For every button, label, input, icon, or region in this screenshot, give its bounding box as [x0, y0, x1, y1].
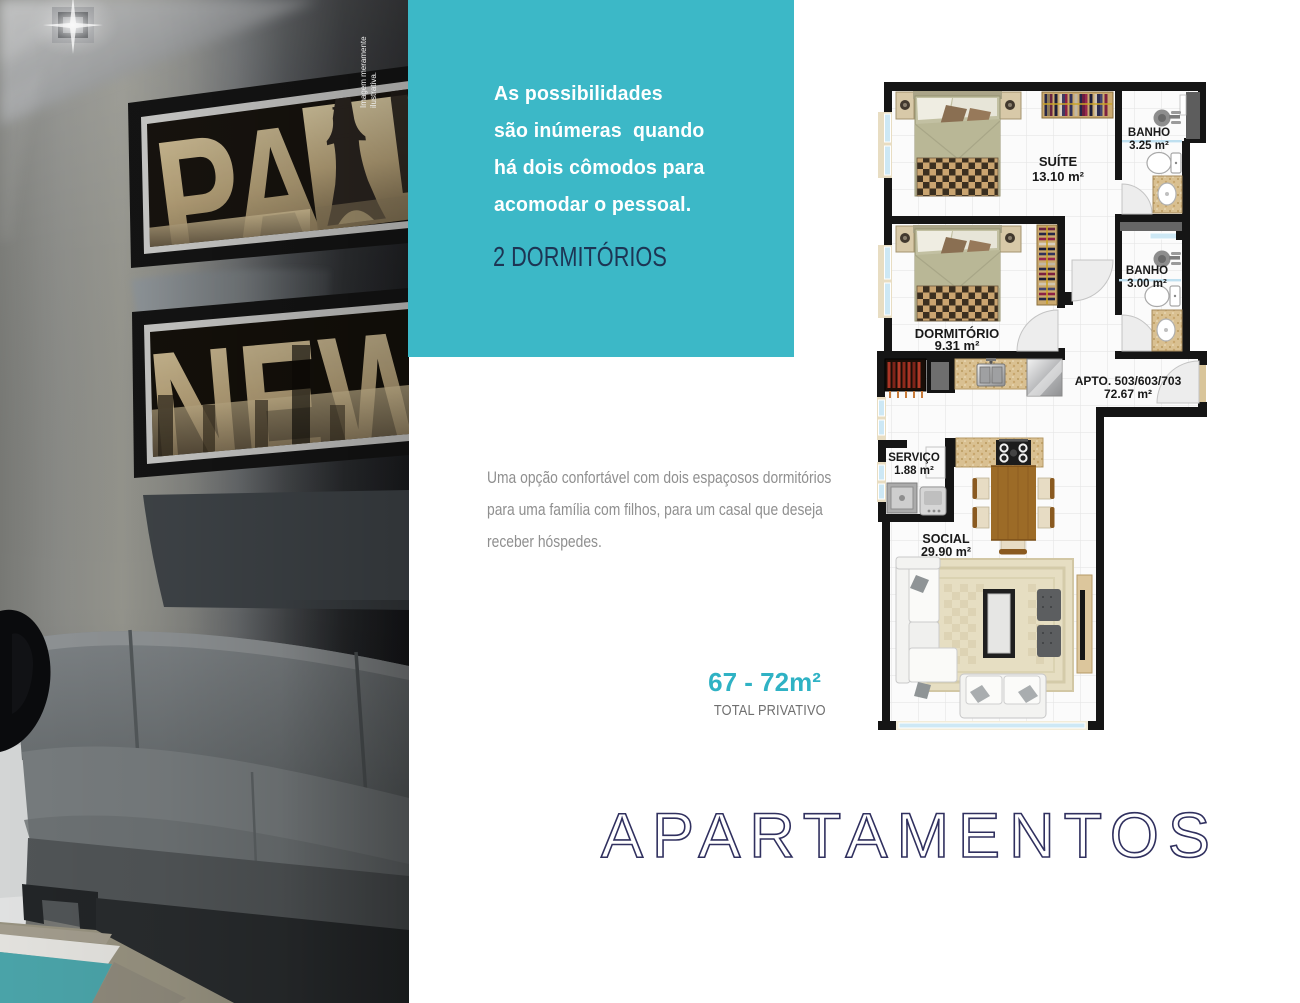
svg-text:BANHO: BANHO: [1126, 265, 1168, 277]
svg-text:SERVIÇO: SERVIÇO: [888, 452, 940, 464]
svg-text:Imagem meramente: Imagem meramente: [359, 36, 368, 108]
svg-text:9.31 m²: 9.31 m²: [935, 338, 980, 353]
svg-text:72.67 m²: 72.67 m²: [1104, 387, 1152, 401]
svg-text:BANHO: BANHO: [1128, 127, 1170, 139]
svg-text:13.10 m²: 13.10 m²: [1032, 169, 1085, 184]
svg-text:APTO. 503/603/703: APTO. 503/603/703: [1075, 374, 1182, 388]
svg-text:ilustrativa.: ilustrativa.: [369, 72, 378, 108]
svg-text:1.88 m²: 1.88 m²: [894, 465, 934, 477]
svg-text:SOCIAL: SOCIAL: [922, 532, 970, 546]
svg-text:3.25 m²: 3.25 m²: [1129, 140, 1169, 152]
svg-text:SUÍTE: SUÍTE: [1039, 154, 1078, 169]
svg-text:3.00 m²: 3.00 m²: [1127, 278, 1167, 290]
